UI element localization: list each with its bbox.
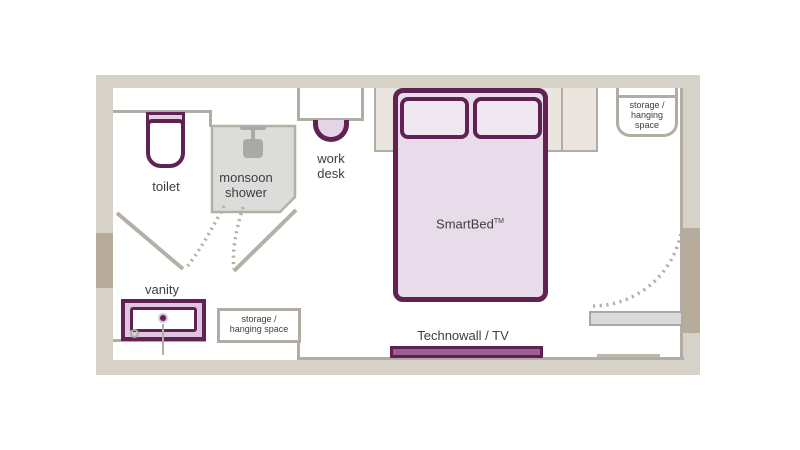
smartbed-label: SmartBedTM [436,214,504,231]
vanity-label: vanity [145,282,179,297]
trademark-superscript: TM [494,218,504,225]
bathroom-door-right [234,210,296,271]
monsoon-shower-label: monsoon shower [219,170,272,200]
toilet-label: toilet [152,179,179,194]
pillow-right [473,97,542,139]
entry-door-swing-arc [593,233,681,306]
faucet-dot [160,315,166,321]
shower-head-icon [240,126,266,158]
technowall-label: Technowall / TV [417,328,509,343]
storage-top-rail [619,95,675,98]
work-desk-label: work desk [317,151,344,181]
bathroom-door-right-swing-arc [233,207,243,269]
pillow-left [400,97,469,139]
toilet-bowl [146,119,185,168]
bathroom-door-left-swing-arc [186,206,224,268]
vanity-drain-line [162,324,164,355]
storage-top-label: storage / hanging space [629,100,664,130]
vanity-control-ring [130,329,139,338]
technowall-bar [390,346,543,358]
storage-bottom-label: storage / hanging space [230,314,289,334]
work-desk-surface [297,88,364,121]
bathroom-door-left [117,213,183,269]
floor-plan: toilet monsoon shower work desk SmartBed… [0,0,800,450]
headboard-shelf-divider [561,88,563,152]
entry-threshold-line [597,354,660,357]
entry-door-panel [589,311,683,326]
